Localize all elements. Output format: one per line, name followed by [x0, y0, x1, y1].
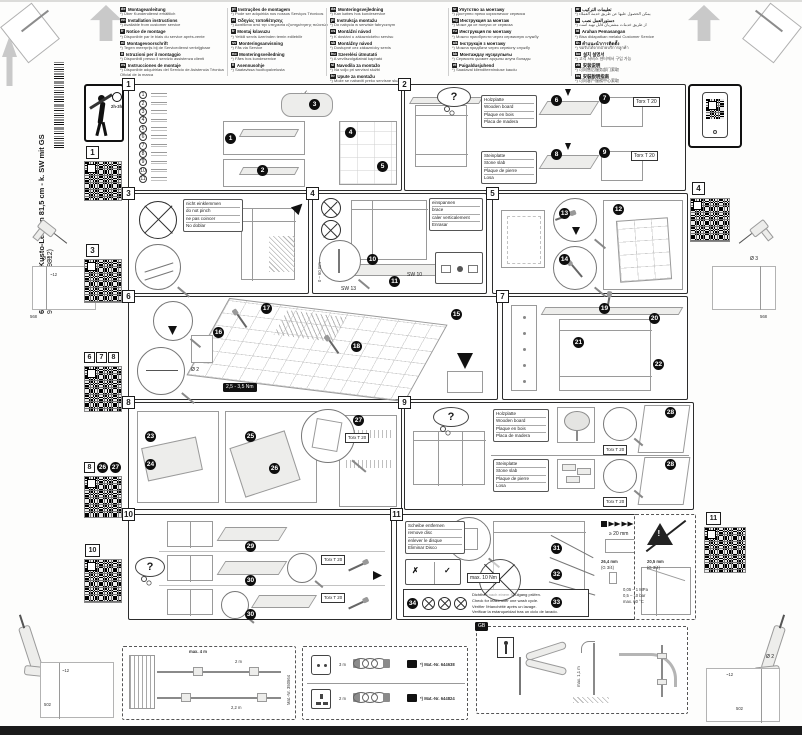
corner-inner-line	[46, 266, 47, 310]
panel-step-6: Ø 2 2,5 - 3,5 Nm 15161718	[128, 296, 498, 400]
dim-502: 502	[736, 706, 743, 711]
parts-list-row: 8	[139, 150, 167, 158]
barcode	[54, 62, 64, 148]
hose-max-length: max. 4 m	[189, 649, 207, 654]
corner-detail-magnifier	[553, 246, 597, 290]
part-icon	[151, 135, 167, 139]
panel-step-2: ? HolzplatteWooden boardPlaque en boisPl…	[404, 84, 686, 191]
label-line: Plaque de pierre	[484, 168, 534, 175]
socket-hole	[317, 664, 320, 667]
label-line: ne pas coincer	[186, 216, 240, 223]
plier-handle	[525, 658, 568, 676]
hole-depth-sketch	[191, 335, 213, 363]
language-entry: idArahan Pemasangan*) Bisa didapatkan me…	[575, 29, 679, 39]
language-note: *) Fås via Service	[231, 46, 335, 51]
language-note: *) Доступно преко корисничког сервиса	[452, 12, 556, 17]
drain-height-dim: max. 1,1 m	[576, 666, 581, 687]
qr-code	[84, 366, 122, 412]
label-line: Losa	[484, 175, 534, 181]
hose-coupling	[257, 693, 267, 702]
parts-list-row: 4	[139, 116, 167, 124]
fold-arrow-top-left-icon	[90, 5, 122, 41]
side-fixing-strip-sketch	[511, 305, 537, 391]
rear-gap-dimension: ≥ 20 mm	[609, 531, 628, 537]
language-column-1: deMontageanleitung*) Über Kundendienst e…	[120, 7, 224, 79]
part-icon	[151, 161, 167, 165]
drill-bit	[739, 233, 752, 244]
part-icon	[151, 144, 167, 148]
drill-diameter-label: Ø 3	[42, 256, 50, 262]
fold-arrow-top-right-icon	[688, 5, 720, 41]
torx-size-tag: Torx T 20	[603, 497, 627, 507]
hose-run-line	[157, 671, 281, 673]
dishwasher-with-template-sketch	[603, 200, 683, 290]
side-profile-sketch	[638, 405, 691, 453]
language-entry: ukІнструкція з монтажу*) Можна придбати …	[452, 41, 556, 51]
panel-line	[242, 221, 296, 222]
language-entry: nlMontagevoorschrift*) Tegen meerprijs b…	[120, 41, 224, 51]
drill-bit	[54, 233, 67, 244]
language-note: *) Можна придбати через сервісну службу	[452, 46, 556, 51]
language-entry: srУпутство за монтажу*) Доступно преко к…	[452, 7, 556, 17]
stopwatch-icon	[112, 92, 122, 102]
cabinet-corner-sketch-bottom-left	[40, 662, 114, 718]
torx-size-tag: Torx T 20	[321, 593, 345, 603]
label-line: Placa de madera	[496, 433, 546, 439]
label-line: caler verticalement	[432, 215, 480, 222]
label-line: Losa	[496, 483, 546, 489]
language-entry: hrUpute za montažu*) Može se nabaviti pr…	[330, 74, 434, 84]
phone-screen-qr	[706, 99, 724, 119]
question-mark: ?	[448, 411, 455, 423]
pressure-mpa: 0,05 – 1 MPa	[623, 587, 648, 592]
sink-hose-sketch	[617, 635, 681, 701]
part-badge: 26	[97, 462, 108, 473]
language-column-4: srУпутство за монтажу*) Доступно преко к…	[452, 7, 556, 74]
language-entry: elΟδηγίες τοποθέτησης*) Διατίθεται από τ…	[231, 18, 335, 28]
panel-label-7: 7	[496, 290, 509, 303]
cord-coil-sketch	[353, 658, 390, 669]
fixing-detail-magnifier	[603, 459, 637, 493]
question-bubble: ?	[135, 557, 165, 577]
language-entry: deMontageanleitung*) Über Kundendienst e…	[120, 7, 224, 17]
cross-icon: ✗	[412, 566, 419, 575]
label-line: Enrasar	[432, 222, 480, 228]
qr-code	[84, 476, 122, 518]
edge-magnifier	[153, 301, 193, 341]
control-strip-line	[416, 115, 468, 116]
down-arrow-icon	[572, 227, 580, 235]
corner-inner-line	[760, 266, 761, 310]
language-entry: bgИнструкция за монтаж*) Може да се полу…	[452, 18, 556, 28]
right-arrow-icon	[628, 521, 634, 526]
cord-mat-number-1: *) Mat.-Nr. 644638	[420, 662, 455, 667]
qr-code	[84, 559, 122, 603]
language-note: *) Disponibili presso il servizio assist…	[120, 57, 224, 62]
fitting-sketch	[609, 572, 617, 584]
kitchen-run-sketch	[413, 431, 485, 485]
language-entry: arتعليمات التركيب*) يمكن الحصول عليها عن…	[575, 7, 679, 17]
latch-detail-magnifier	[553, 198, 597, 242]
language-entry: plInstrukcja montażu*) Do nabycia w serw…	[330, 18, 434, 28]
hose-detail-magnifier	[135, 244, 181, 290]
no-leak-icon	[454, 597, 467, 610]
screw-arrow-icon	[565, 143, 571, 150]
torque-tag: 2,5 - 3,5 Nm	[223, 383, 257, 392]
pliers-sketch	[511, 643, 573, 695]
language-note: *) از طریق خدمات مشتریان قابل تهیه است	[575, 23, 679, 28]
language-note: *) Bisa didapatkan melalui Customer Serv…	[575, 35, 679, 40]
qr-step-label-8b: 8	[84, 462, 95, 473]
picto-dot	[457, 266, 463, 272]
part-number-circle: 7	[139, 142, 147, 150]
language-entry: noMonteringsveiledning*) Fåes hos kundes…	[231, 52, 335, 62]
language-note: *) A vevőszolgálatnál kapható	[330, 57, 434, 62]
socket-eu-icon	[311, 655, 331, 675]
door-line	[190, 556, 191, 582]
brace-label-box: einspannenbracecaler verticalementEnrasa…	[429, 198, 483, 231]
label-line: Plaque en bois	[484, 112, 534, 119]
qr-step-label-3: 3	[86, 244, 99, 257]
do-not-pinch-crossed-circle	[139, 201, 177, 239]
language-note: *) Dostupné cez zákaznícky servis	[330, 46, 434, 51]
language-entry: frNotice de montage*) Disponible par le …	[120, 29, 224, 39]
drill-diameter-label: Ø 2	[766, 654, 774, 660]
hose-coupling	[181, 693, 191, 702]
torx-size-tag: Torx T 20	[633, 97, 660, 107]
qr-code	[690, 198, 730, 242]
pinch-warning-label-box: nicht einklemmendo not pinchne pas coinc…	[183, 199, 243, 232]
qr-code	[704, 527, 746, 573]
language-note: *) Disponible adquirirlas del Servicio d…	[120, 68, 224, 77]
qr-step-label-7: 7	[96, 352, 107, 363]
part-number-circle: 2	[139, 100, 147, 108]
label-line: Verificar la estanqueidad tras un ciclo …	[472, 609, 588, 615]
control-strip-line	[560, 330, 652, 331]
panel-step-7: 19202122	[502, 296, 688, 400]
door-inner-line	[507, 216, 541, 264]
language-entry: kkМонтаждау нұсқаулығы*) Сервистік қызме…	[452, 52, 556, 62]
plug-end	[383, 659, 390, 668]
template-hatch-area	[274, 310, 347, 342]
row-divider	[159, 551, 385, 552]
hose-coupling	[249, 667, 259, 676]
torx-size-tag: Torx T 20	[321, 555, 345, 565]
wooden-worktop-label-box: HolzplatteWooden boardPlaque en boisPlac…	[481, 95, 537, 128]
exclamation-mark: !	[658, 529, 661, 538]
part-icon	[151, 169, 167, 173]
dim-568: 568	[30, 314, 37, 319]
column-divider	[326, 8, 327, 76]
parts-list: 1234567891011	[139, 91, 167, 183]
question-mark: ?	[147, 561, 154, 573]
dim-12: ~12	[50, 272, 57, 277]
torx-size-tag: Torx T 20	[345, 433, 369, 443]
language-entry: svMonteringsanvisning*) Fås via Service	[231, 41, 335, 51]
tilted-panel-sketch	[229, 430, 300, 497]
qr-step-label-10: 10	[85, 544, 100, 557]
phone-button-icon	[713, 130, 717, 134]
language-note: *) Сервистік қызмет арқылы алуға болады	[452, 57, 556, 62]
panel-step-4: einspannenbracecaler verticalementEnrasa…	[312, 193, 487, 294]
stone-worktop-label-box: SteinplatteStone slabPlaque de pierreLos…	[493, 459, 549, 492]
clamp	[657, 679, 667, 685]
panel-label-2: 2	[398, 78, 411, 91]
language-note: *) Yetkili servis üzerinden temin edileb…	[231, 35, 335, 40]
plug-end	[383, 693, 390, 702]
screw-depth-magnifier	[137, 347, 185, 395]
panel-step-3: nicht einklemmendo not pinchne pas coinc…	[128, 193, 309, 294]
fitting-diameter-2: 20,5 mm	[647, 559, 664, 564]
parts-list-row: 5	[139, 125, 167, 133]
language-entry: thคำแนะนำการติดตั้ง*) ขอรับได้จากฝ่ายบริ…	[575, 41, 679, 51]
language-note: *) Fåes hos kundeservice	[231, 57, 335, 62]
max-torque-tag: max. 10 Nm	[467, 573, 500, 583]
no-leak-icon	[422, 597, 435, 610]
seal-strip-sketch	[239, 167, 299, 175]
drain-hose-bend	[581, 641, 595, 653]
label-line: Holzplatte	[484, 97, 534, 104]
label-line: do not pinch	[186, 208, 240, 215]
two-person-carry-pictogram: 2h-3h	[84, 84, 124, 142]
panel-step-8: Torx T 20 2324252627	[128, 402, 402, 510]
parts-list-row: 10	[139, 167, 167, 175]
column-divider	[571, 8, 572, 76]
label-line: Stone slab	[484, 160, 534, 167]
right-arrow-icon	[608, 521, 614, 526]
panel-step-1: 1234567891011 ✂ 12345	[128, 84, 402, 191]
socket-slot	[323, 702, 328, 705]
label-line: Scheibe entfernen	[408, 523, 462, 530]
hose-line	[550, 535, 593, 559]
question-bubble: ?	[437, 87, 471, 107]
screw-arrow-icon	[565, 89, 571, 96]
cut-cable	[519, 657, 521, 695]
qr-step-label-row-8: 8 26 27	[84, 462, 121, 473]
language-entry: ko설치 설명서*) 고객 서비스 센터에서 구입 가능	[575, 52, 679, 62]
part-icon	[151, 119, 167, 123]
plinth-rail-sketch	[217, 527, 288, 541]
label-line: No doblar	[186, 223, 240, 229]
figure-leg-icon	[95, 122, 101, 136]
language-entry: etPaigaldusjuhend*) Saadaval klienditeen…	[452, 63, 556, 73]
language-entry: tw安裝說明指南*) 可向客戶服務中心索取	[575, 74, 679, 84]
picto-line	[468, 265, 478, 273]
bin-figure-body	[505, 645, 507, 654]
mounting-bracket-sketch	[539, 155, 600, 169]
hose-line	[549, 557, 594, 576]
inner-line	[372, 201, 373, 261]
panel-corner	[312, 418, 343, 452]
language-note: *) Tegen meerprijs bij de Servicedienst …	[120, 46, 224, 51]
qr-step-label-4: 4	[692, 182, 705, 195]
corner-sketch-top-right	[742, 3, 802, 64]
row-divider	[159, 585, 385, 586]
wrench-size-label: SW 10	[407, 272, 422, 278]
pilot-hole-diameter: Ø 2	[191, 367, 199, 373]
transport-warning-box: !	[634, 514, 696, 620]
part-number-circle: 11	[139, 175, 147, 183]
language-entry: enInstallation instructions*) Available …	[120, 18, 224, 28]
language-note: *) 可向售后服务部门索取	[575, 68, 679, 73]
part-number-circle: 4	[139, 116, 147, 124]
part-number-circle: 8	[139, 150, 147, 158]
qr-step-label-row-678: 6 7 8	[84, 352, 119, 363]
cabinet-niche-sketch	[339, 121, 397, 185]
language-entry: daMonteringsvejledning*) Kan købes hos k…	[330, 7, 434, 17]
door-line	[416, 154, 468, 155]
divider	[434, 562, 435, 584]
step-badge: 15	[451, 309, 462, 320]
qr-code	[84, 161, 122, 201]
step-badge: 11	[389, 276, 400, 287]
strip-roll-sketch	[281, 93, 333, 117]
label-line: Holzplatte	[496, 411, 546, 418]
language-column-2: ptInstruções de montagem*) Pode ser adqu…	[231, 7, 335, 74]
panel-label-11: 11	[390, 508, 403, 521]
right-arrow-icon	[615, 521, 621, 526]
qr-step-label-11: 11	[706, 512, 721, 525]
wooden-worktop-label-box: HolzplatteWooden boardPlaque en boisPlac…	[493, 409, 549, 442]
language-note: *) Saatavissa huoltopalvelusta	[231, 68, 335, 73]
part-icon	[151, 177, 167, 181]
part-badge: 27	[110, 462, 121, 473]
gap-corner-sketch	[605, 539, 635, 553]
gb-tag: GB	[475, 622, 488, 631]
plinth-rail-sketch	[217, 561, 288, 575]
language-entry: ptInstruções de montagem*) Pode ser adqu…	[231, 7, 335, 17]
column-divider	[448, 8, 449, 76]
parts-list-row: 2	[139, 99, 167, 107]
language-note: *) Na voljo pri servisni službi	[330, 68, 434, 73]
smartphone-qr-pictogram	[688, 84, 742, 148]
power-cord-box: 3 m *) Mat.-Nr. 644638 2 m *) Mat.-Nr. 6…	[302, 646, 468, 720]
door-line	[656, 568, 657, 616]
language-note: *) Do nabycia w serwisie fabrycznym	[330, 23, 434, 28]
wrong-foot-crossed-circle	[321, 220, 341, 240]
tree-crown	[564, 411, 590, 431]
foot-range-label: 0 – 60 mm	[317, 262, 322, 282]
language-entry: zh安装说明*) 可向售后服务部门索取	[575, 63, 679, 73]
label-line: Steinplatte	[484, 153, 534, 160]
door-line	[252, 209, 253, 281]
panel-label-8: 8	[122, 396, 135, 409]
door-line	[190, 590, 191, 616]
row-divider	[491, 455, 689, 456]
hose-length-2m: 2 m	[235, 659, 242, 664]
panel-label-4: 4	[306, 187, 319, 200]
language-note: *) K dostání u zákaznického servisu	[330, 35, 434, 40]
language-entry: fiAsennusohje*) Saatavissa huoltopalvelu…	[231, 63, 335, 73]
screwdriver-icon	[555, 214, 571, 221]
label-line: Placa de madera	[484, 119, 534, 125]
top-line	[494, 532, 586, 533]
socket-gb-icon	[311, 689, 331, 709]
no-leak-icon	[438, 597, 451, 610]
hose-length-22m: 2,2 m	[231, 705, 241, 710]
language-entry: huSzerelési útmutató*) A vevőszolgálatná…	[330, 52, 434, 62]
down-arrow-icon	[168, 326, 177, 335]
cabinet-front-sketch	[167, 589, 213, 615]
corner-inner-line	[761, 669, 762, 723]
part-number-circle: 6	[139, 133, 147, 141]
language-entry: csMontážní návod*) K dostání u zákaznick…	[330, 29, 434, 39]
language-entry: faدستورالعمل نصب*) از طریق خدمات مشتریان…	[575, 18, 679, 28]
cabinet-front-sketch	[167, 521, 213, 547]
dim-12: ~12	[726, 672, 733, 677]
parts-list-row: 6	[139, 133, 167, 141]
part-icon	[151, 93, 167, 97]
corner-inner-line	[59, 663, 60, 719]
clamp	[657, 653, 667, 659]
gb-plug-box: GB max. 1,1 m	[476, 626, 688, 714]
question-bubble: ?	[433, 407, 469, 427]
label-line: brace	[432, 207, 480, 214]
language-note: *) Über Kundendienst erhältlich	[120, 12, 224, 17]
panel-label-10: 10	[122, 508, 135, 521]
panel-step-5: 121314	[492, 193, 688, 294]
row-divider	[307, 683, 465, 684]
torx-size-tag: Torx T 20	[631, 151, 658, 161]
parts-list-row: 11	[139, 175, 167, 183]
hose-handling-pictogram-box: ✗ ✓	[405, 559, 461, 585]
drill-grip	[32, 228, 45, 242]
hole-dot	[523, 316, 526, 319]
part-icon	[151, 110, 167, 114]
stone-block	[562, 464, 576, 471]
socket-slot	[320, 694, 323, 699]
top-line	[414, 440, 486, 441]
qr-code	[84, 259, 122, 303]
part-number-circle: 10	[139, 167, 147, 175]
part-icon	[151, 152, 167, 156]
part-number-circle: 3	[139, 108, 147, 116]
instruction-sheet: deMontageanleitung*) Über Kundendienst e…	[0, 0, 802, 735]
top-edge-line	[0, 0, 802, 2]
step-badge: 34	[407, 598, 418, 609]
cabinet-sketch	[351, 200, 427, 260]
dim-12: ~12	[62, 668, 69, 673]
cord-length-1: 3 m	[339, 662, 346, 667]
drill-diameter-label: Ø 3	[750, 256, 758, 262]
mounting-bracket-sketch	[539, 101, 600, 115]
drill-grip	[761, 228, 774, 242]
part-number-circle: 1	[139, 91, 147, 99]
furniture-door-sketch	[501, 210, 545, 268]
cord-length-2: 2 m	[339, 696, 346, 701]
clip-detail-magnifier	[287, 553, 317, 583]
side-profile-sketch	[638, 457, 691, 505]
tree-sketch	[557, 407, 595, 443]
language-column-5: arتعليمات التركيب*) يمكن الحصول عليها عن…	[575, 7, 679, 85]
screw-profile-line	[146, 370, 178, 371]
label-line: Stone slab	[496, 468, 546, 475]
socket-hole	[324, 664, 327, 667]
label-line: Eliminar Disco	[408, 545, 462, 551]
cord-coil-sketch	[353, 692, 390, 703]
stone-block	[566, 476, 580, 483]
panel-label-5: 5	[486, 187, 499, 200]
picto-line	[441, 265, 451, 273]
label-line: enlever le disque	[408, 538, 462, 545]
parts-list-row: 7	[139, 141, 167, 149]
label-line: Plaque en bois	[496, 426, 546, 433]
screwdriver-icon	[348, 601, 363, 609]
step-badge: 22	[653, 359, 664, 370]
label-line: Steinplatte	[496, 461, 546, 468]
label-line: Wooden board	[484, 104, 534, 111]
panel-label-1: 1	[122, 78, 135, 91]
